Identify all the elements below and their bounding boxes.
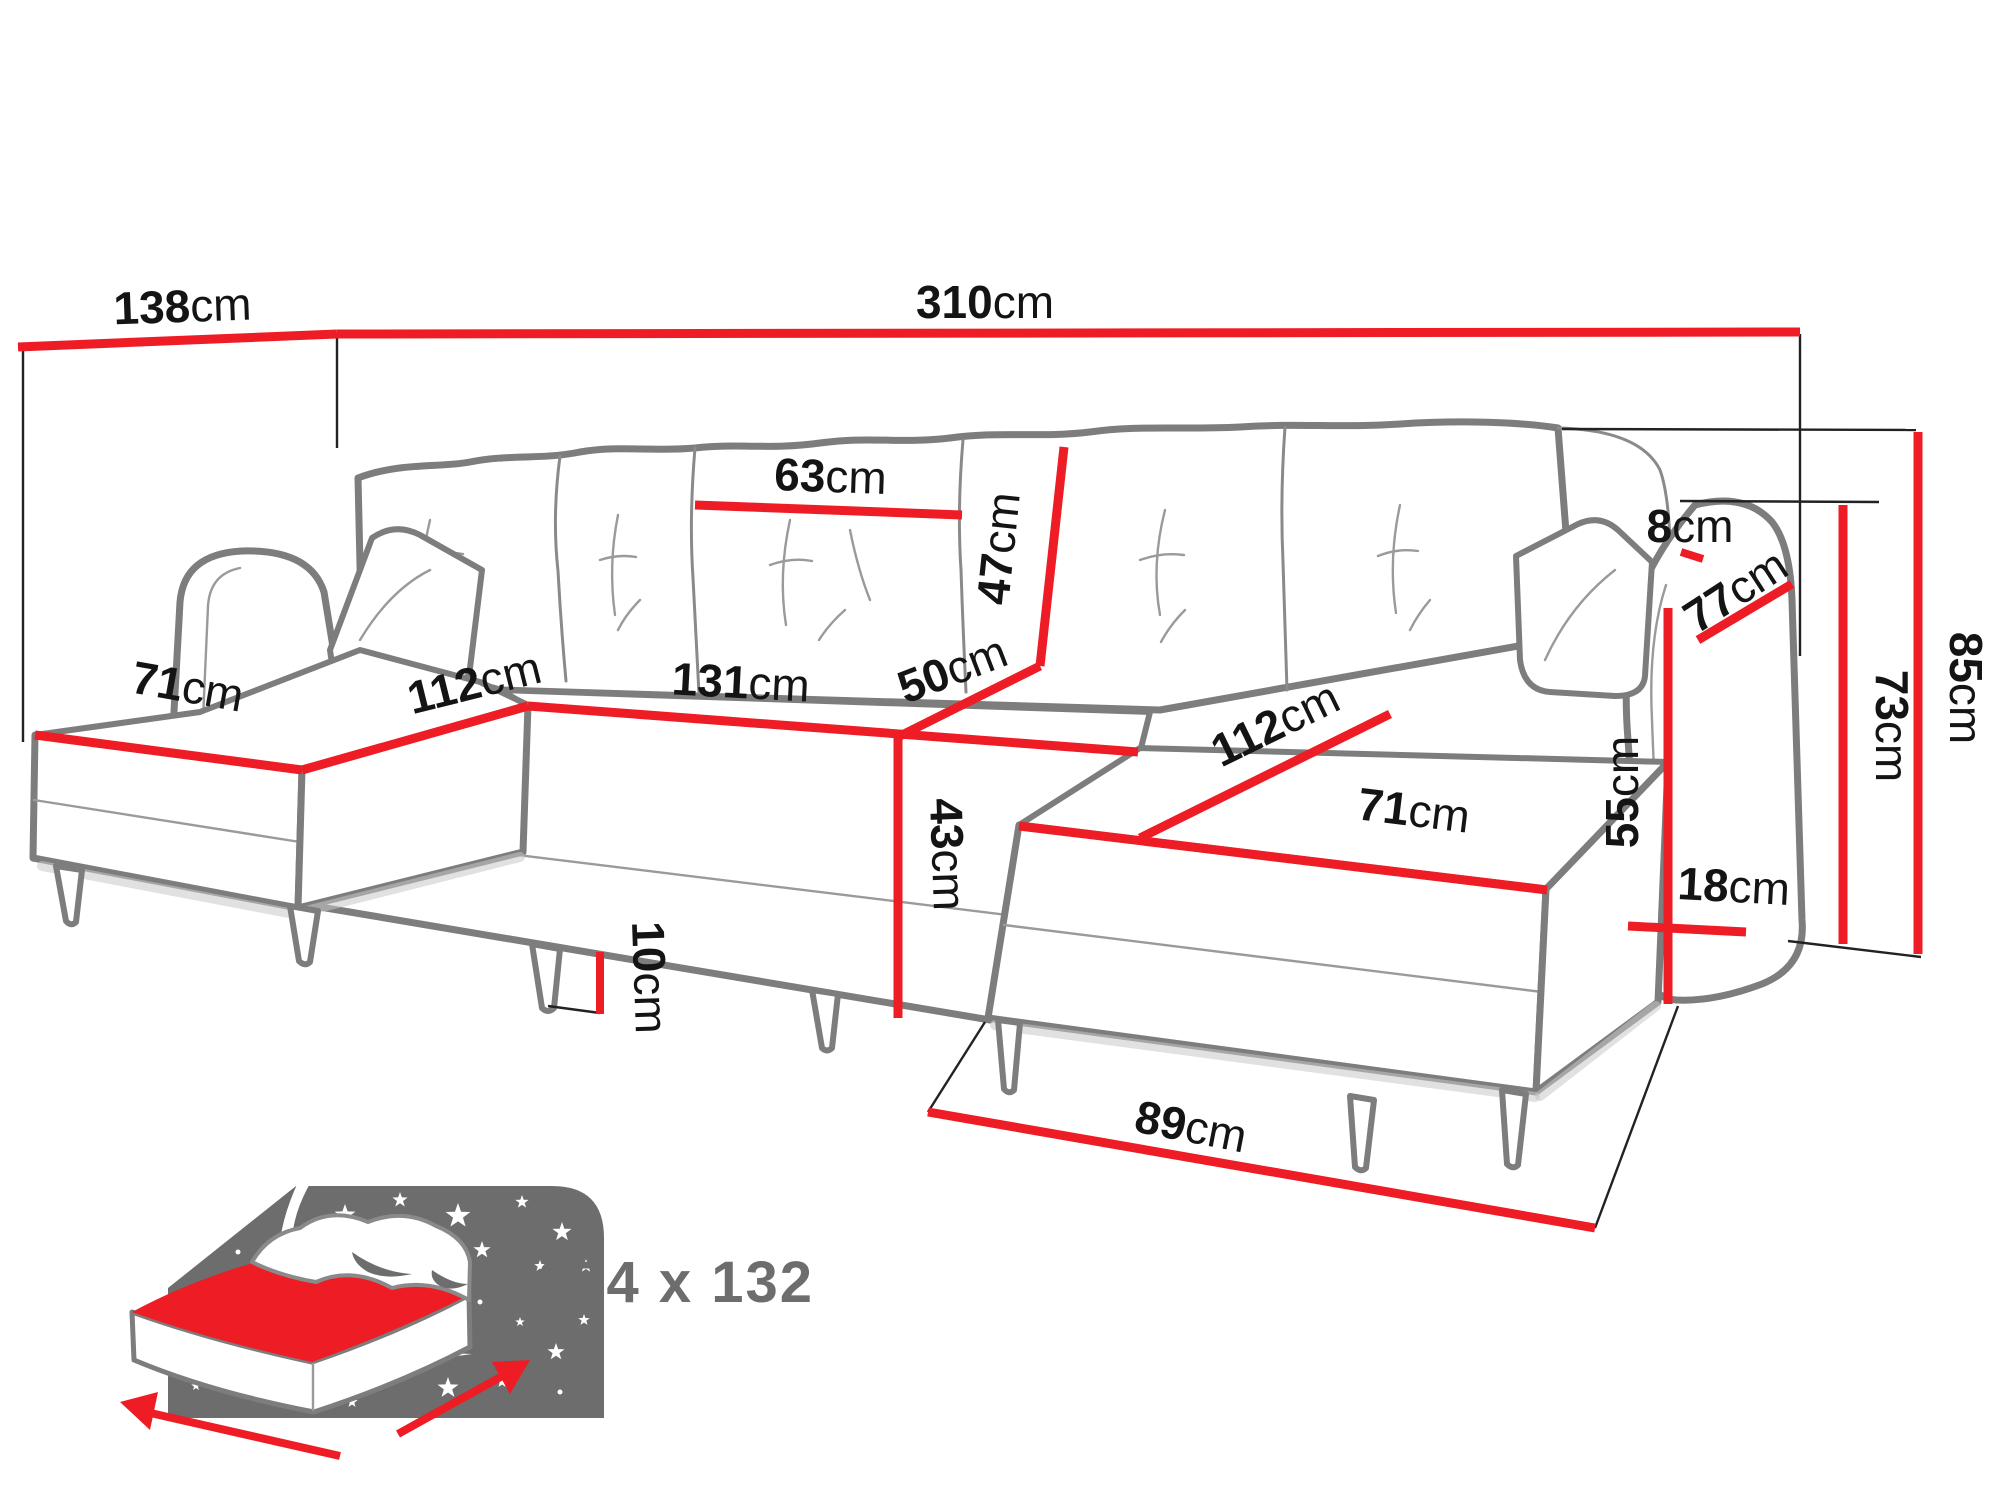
dimension-label-total-height: 85cm bbox=[1940, 632, 1992, 745]
dimension-line-armrest-width bbox=[1628, 926, 1746, 932]
dimension-label-armrest-inner-height: 55cm bbox=[1596, 736, 1648, 849]
dimension-label-total-width: 310cm bbox=[916, 276, 1054, 328]
bed-with-starry-headboard-icon bbox=[120, 1180, 604, 1456]
middle-leg bbox=[532, 944, 560, 1011]
middle-leg bbox=[812, 990, 838, 1051]
dimension-label-seat-height: 43cm bbox=[920, 797, 976, 911]
left-chaise-leg bbox=[290, 906, 318, 964]
arrowhead bbox=[120, 1392, 158, 1430]
dimension-line-front-floor-depth bbox=[928, 1112, 1595, 1228]
dimension-label-armrest-width: 18cm bbox=[1676, 857, 1791, 915]
right-pillow bbox=[1516, 520, 1652, 696]
dimension-label-back-gap: 8cm bbox=[1647, 500, 1734, 552]
right-chaise-leg bbox=[1502, 1090, 1526, 1167]
sofa-drawing bbox=[33, 422, 1802, 1170]
dimension-line-left-depth bbox=[18, 334, 337, 347]
dimension-label-armrest-height: 73cm bbox=[1866, 670, 1918, 783]
dimension-label-middle-seat-width: 131cm bbox=[671, 652, 812, 711]
right-chaise bbox=[988, 748, 1668, 1170]
dimension-label-back-cushion-width: 63cm bbox=[773, 448, 887, 504]
dimension-line-total-width bbox=[337, 332, 1800, 334]
left-chaise-leg bbox=[56, 866, 82, 924]
right-chaise-leg bbox=[998, 1020, 1020, 1092]
sleeping-area-size-label: 274 x 132 bbox=[538, 1250, 814, 1315]
sofa-dimension-diagram: 138cm 310cm 63cm 47cm 50cm 131cm 43cm 10… bbox=[0, 0, 2000, 1500]
dimension-label-left-depth: 138cm bbox=[113, 278, 253, 335]
sofa-dimension-diagram-page: 138cm 310cm 63cm 47cm 50cm 131cm 43cm 10… bbox=[0, 0, 2000, 1500]
dimension-label-leg-height: 10cm bbox=[622, 920, 678, 1034]
right-chaise-leg bbox=[1350, 1096, 1374, 1170]
